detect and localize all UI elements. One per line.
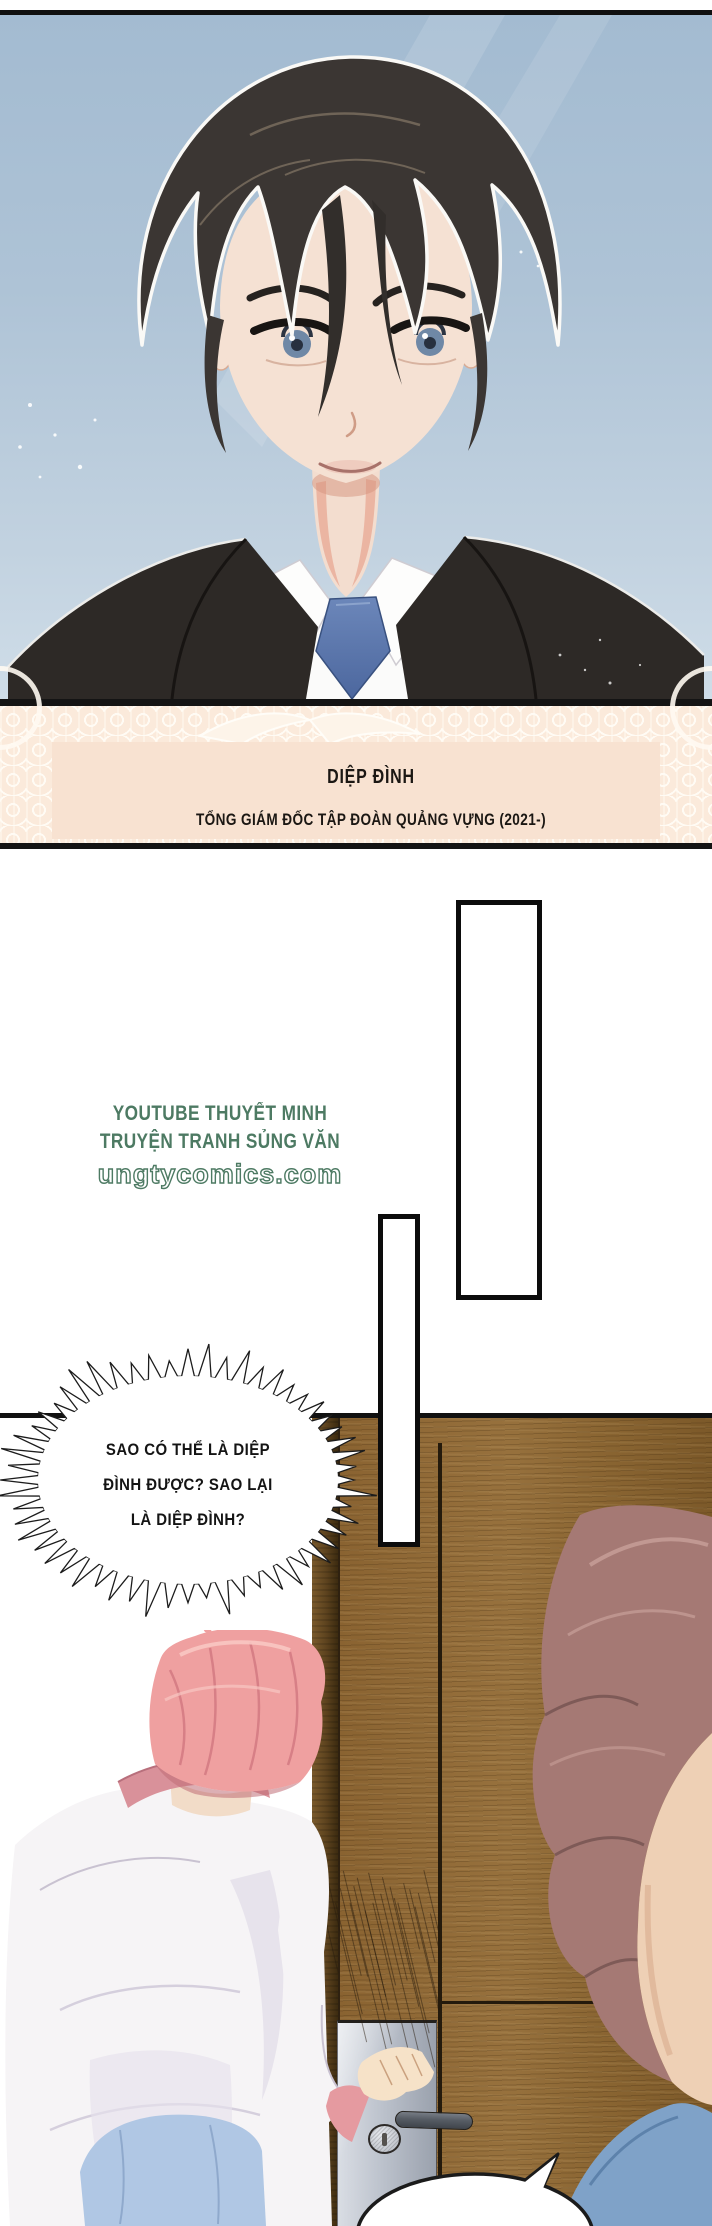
right-character [520,1505,712,2226]
panel-bar-thin [378,1214,420,1547]
bottom-speech-bubble [350,2140,600,2226]
top-margin-strip [0,0,712,10]
burst-line-2: ĐÌNH ĐƯỢC? SAO LẠI [56,1475,320,1495]
panel-bar-tall [456,900,542,1300]
panel-border-top [0,10,712,15]
portrait-panel [0,15,712,699]
portrait-illustration [0,15,712,699]
caption-character-name: DIỆP ĐÌNH [98,766,644,789]
comic-page: DIỆP ĐÌNH TỔNG GIÁM ĐỐC TẬP ĐOÀN QUẢNG V… [0,0,712,2226]
burst-line-1: SAO CÓ THỂ LÀ DIỆP [56,1440,320,1460]
caption-character-title: TỔNG GIÁM ĐỐC TẬP ĐOÀN QUẢNG VỰNG (2021-… [98,810,644,830]
watermark: YOUTUBE THUYẾT MINH TRUYỆN TRANH SỦNG VĂ… [60,1100,380,1192]
left-character [0,1630,480,2226]
burst-line-3: LÀ DIỆP ĐÌNH? [56,1510,320,1530]
watermark-line-3: ungtycomics.com [60,1156,380,1192]
ornament-motif [190,706,430,746]
watermark-line-2: TRUYỆN TRANH SỦNG VĂN [89,1128,351,1156]
watermark-line-1: YOUTUBE THUYẾT MINH [89,1100,351,1128]
